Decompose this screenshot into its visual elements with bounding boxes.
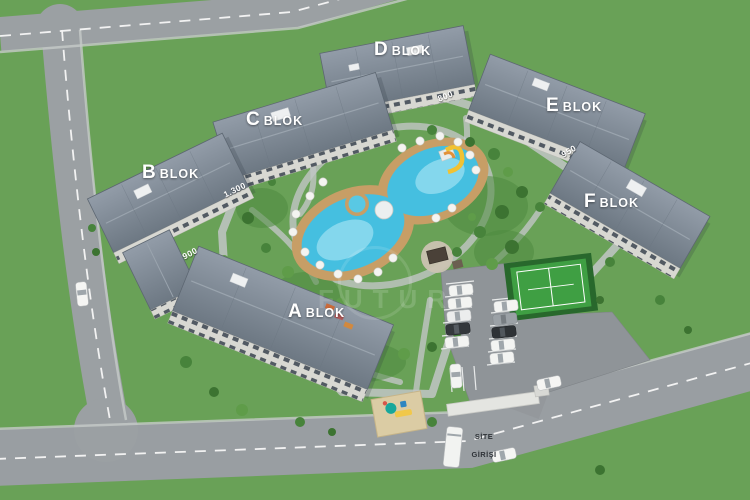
- tennis-court: [504, 253, 598, 321]
- site-plan-render: A BLOK B BLOK C BLOK D BLOK E BLOK F BLO…: [0, 0, 750, 500]
- road-junction: [74, 398, 138, 462]
- car: [448, 283, 473, 296]
- car: [491, 325, 516, 338]
- car: [444, 335, 469, 348]
- car: [75, 281, 88, 306]
- car: [445, 322, 470, 335]
- kiddie-pool: [349, 196, 366, 213]
- site-render-canvas: [0, 0, 750, 500]
- car: [450, 364, 463, 389]
- car: [489, 351, 514, 364]
- pool-island-bar: [375, 201, 393, 219]
- car: [490, 338, 515, 351]
- car: [447, 296, 472, 309]
- car: [493, 299, 518, 312]
- playground: [371, 391, 427, 437]
- car: [446, 309, 471, 322]
- car: [492, 312, 517, 325]
